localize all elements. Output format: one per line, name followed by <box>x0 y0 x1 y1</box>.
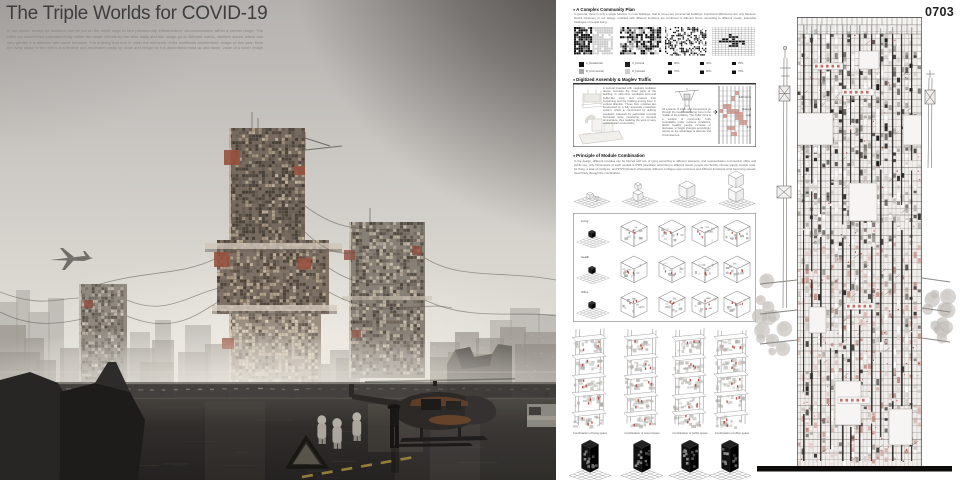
svg-text:Office: Office <box>581 290 589 294</box>
svg-text:Health: Health <box>581 255 590 259</box>
svg-text:Living: Living <box>581 219 589 223</box>
